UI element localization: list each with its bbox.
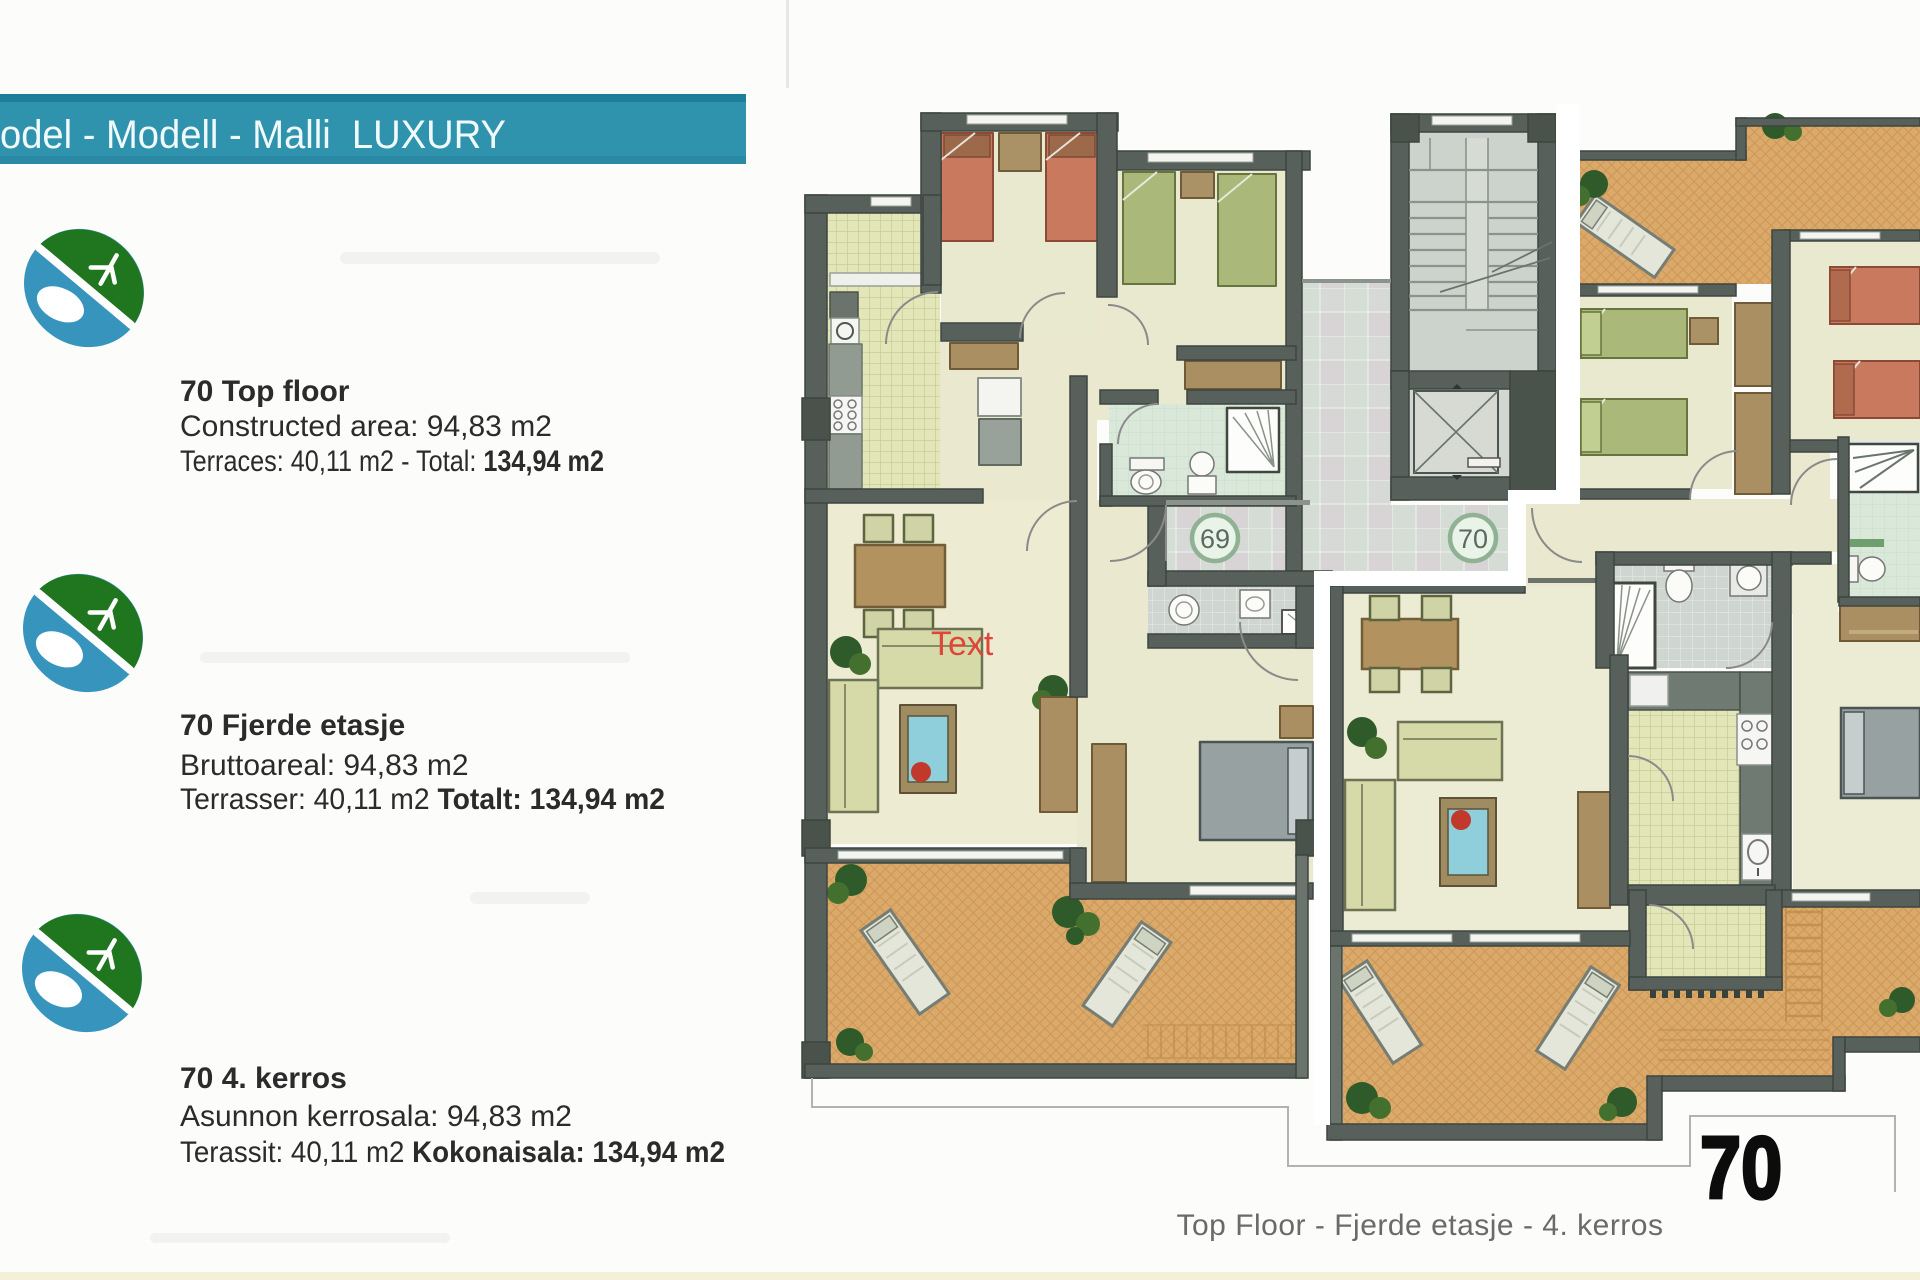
- svg-text:Terrasser: 40,11 m2 Totalt: 13: Terrasser: 40,11 m2 Totalt: 134,94 m2: [180, 783, 665, 816]
- svg-text:Terraces: 40,11 m2 - Total: 13: Terraces: 40,11 m2 - Total: 134,94 m2: [180, 445, 604, 478]
- svg-text:70 Top floor: 70 Top floor: [180, 375, 350, 408]
- svg-text:Terassit: 40,11 m2 Kokonaisala: Terassit: 40,11 m2 Kokonaisala: 134,94 m…: [180, 1136, 725, 1169]
- svg-text:69: 69: [1200, 524, 1230, 554]
- svg-text:Constructed area: 94,83 m2: Constructed area: 94,83 m2: [180, 410, 552, 443]
- svg-text:70: 70: [1700, 1119, 1782, 1218]
- svg-text:odel - Modell - Malli LUXURY: odel - Modell - Malli LUXURY: [0, 113, 506, 157]
- svg-text:70: 70: [1458, 524, 1488, 554]
- svg-text:Asunnon kerrosala: 94,83 m2: Asunnon kerrosala: 94,83 m2: [180, 1100, 572, 1133]
- svg-text:Text: Text: [931, 625, 994, 663]
- svg-text:Bruttoareal: 94,83 m2: Bruttoareal: 94,83 m2: [180, 749, 469, 782]
- svg-text:70 4. kerros: 70 4. kerros: [180, 1062, 347, 1095]
- svg-text:70 Fjerde etasje: 70 Fjerde etasje: [180, 709, 405, 742]
- svg-text:Top Floor - Fjerde etasje - 4.: Top Floor - Fjerde etasje - 4. kerros: [1176, 1209, 1663, 1242]
